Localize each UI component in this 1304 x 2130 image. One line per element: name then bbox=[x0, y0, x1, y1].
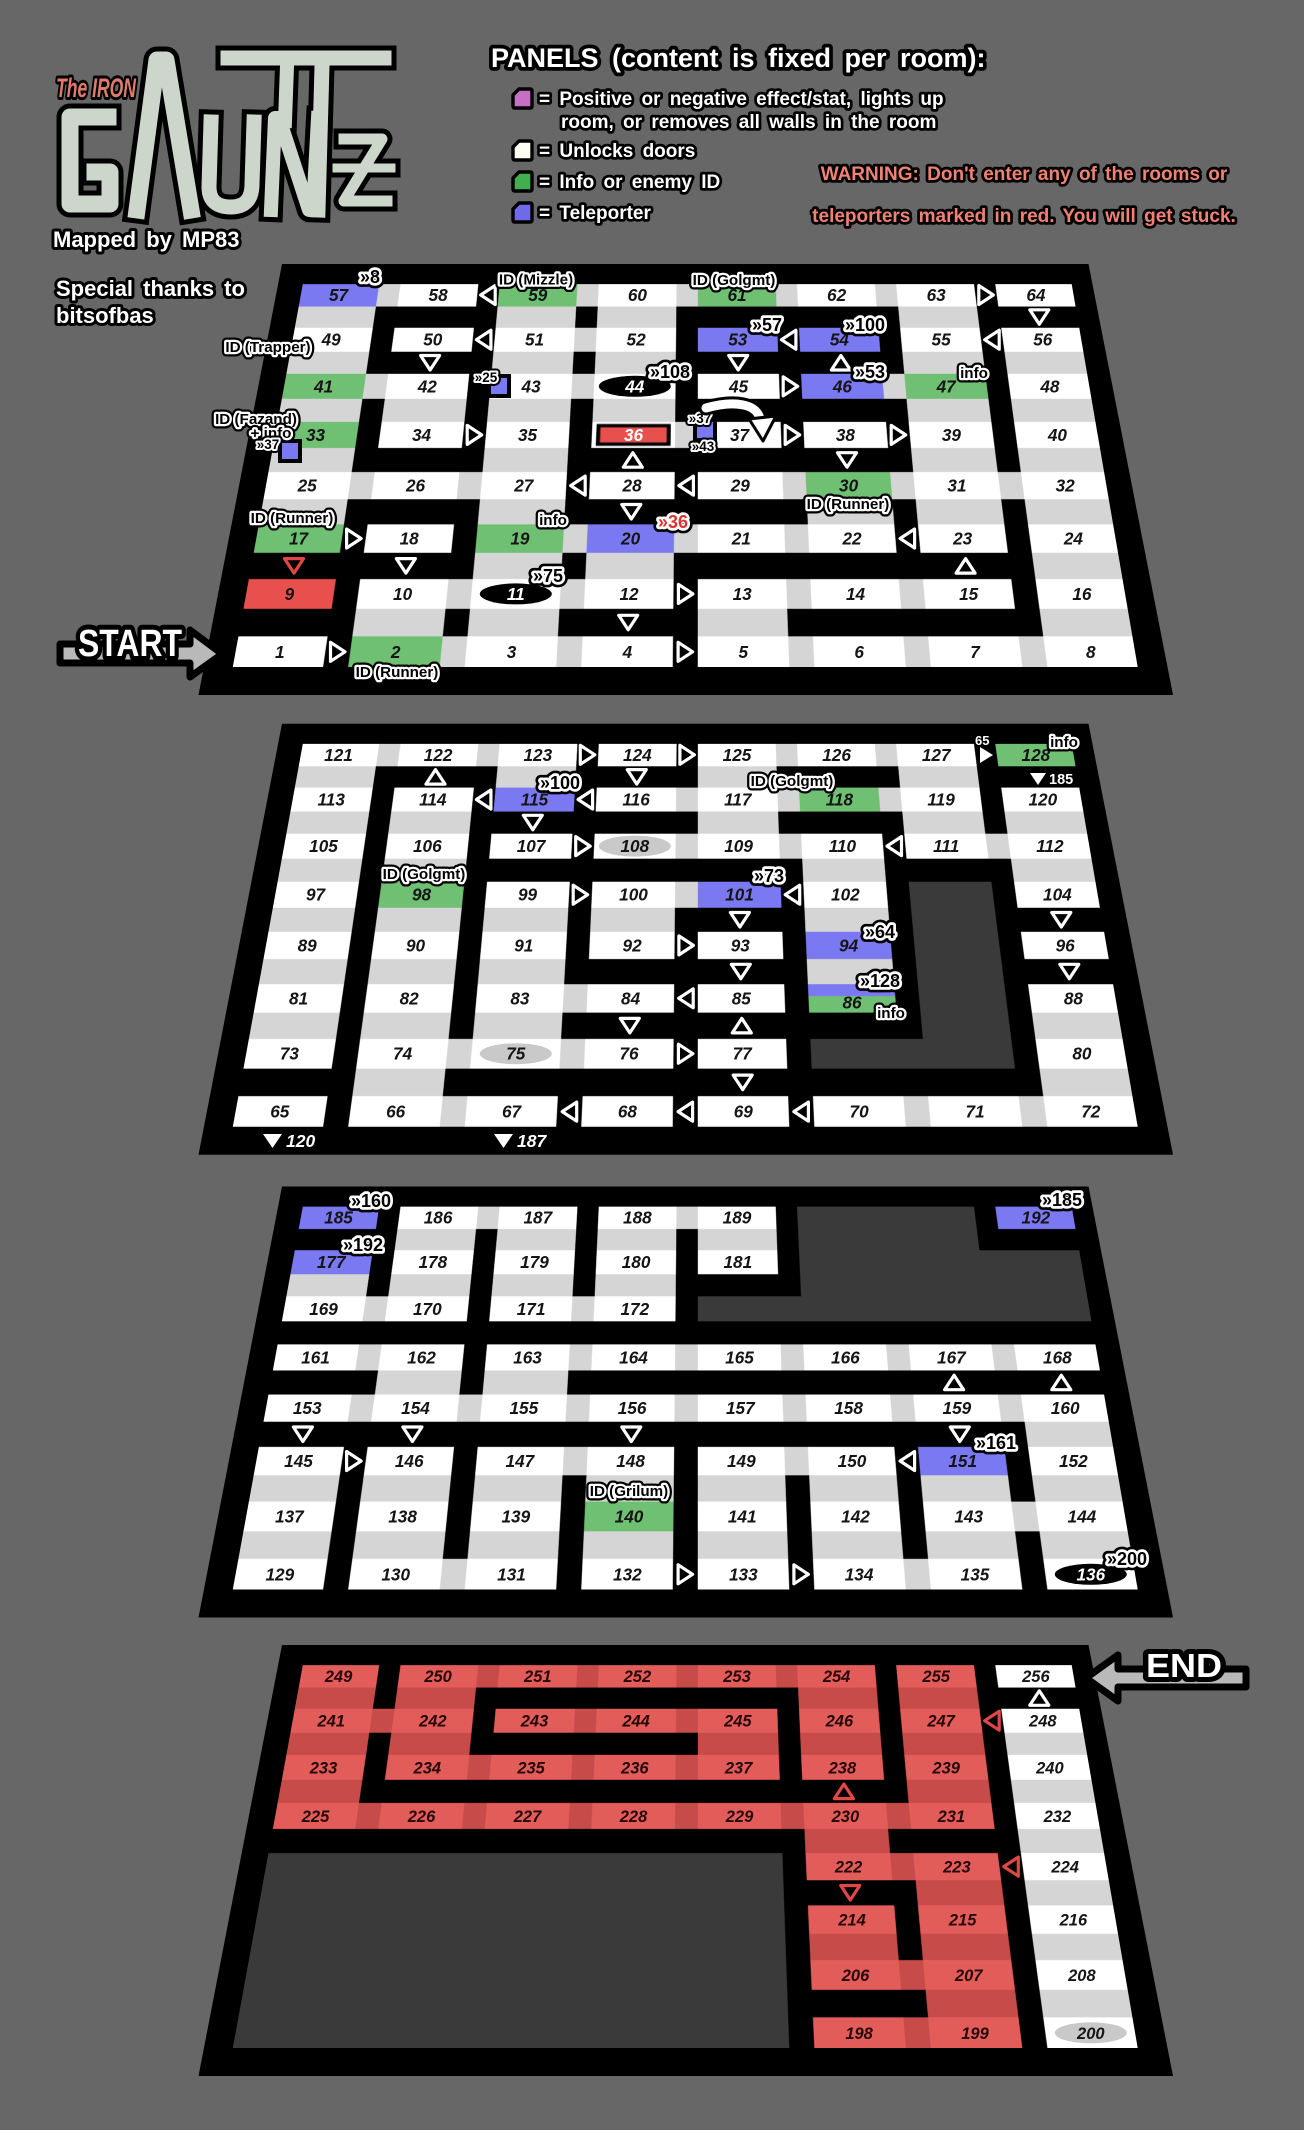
svg-text:11: 11 bbox=[507, 584, 525, 604]
svg-text:207: 207 bbox=[954, 1967, 983, 1985]
svg-text:222: 222 bbox=[834, 1859, 863, 1877]
svg-text:229: 229 bbox=[725, 1808, 754, 1826]
svg-text:3: 3 bbox=[507, 642, 517, 662]
svg-text:20: 20 bbox=[620, 529, 641, 549]
svg-text:6: 6 bbox=[854, 642, 864, 662]
svg-text:teleporters marked in red. You: teleporters marked in red. You will get … bbox=[812, 206, 1236, 227]
svg-text:151: 151 bbox=[948, 1451, 977, 1471]
svg-text:185: 185 bbox=[324, 1208, 353, 1228]
svg-text:140: 140 bbox=[615, 1506, 644, 1526]
svg-text:»57: »57 bbox=[752, 315, 782, 335]
svg-text:= Teleporter: = Teleporter bbox=[539, 203, 651, 224]
svg-text:74: 74 bbox=[393, 1044, 413, 1064]
svg-text:91: 91 bbox=[514, 935, 533, 955]
svg-text:189: 189 bbox=[723, 1208, 752, 1228]
svg-text:82: 82 bbox=[400, 988, 420, 1008]
svg-text:113: 113 bbox=[317, 790, 345, 810]
svg-text:165: 165 bbox=[725, 1347, 754, 1367]
svg-text:152: 152 bbox=[1059, 1451, 1088, 1471]
svg-text:160: 160 bbox=[1051, 1398, 1080, 1418]
svg-text:102: 102 bbox=[831, 885, 860, 905]
svg-text:= Positive or negative effect/: = Positive or negative effect/stat, ligh… bbox=[539, 89, 944, 110]
svg-text:255: 255 bbox=[921, 1668, 950, 1686]
svg-text:167: 167 bbox=[937, 1347, 967, 1367]
svg-text:245: 245 bbox=[723, 1713, 752, 1731]
svg-text:65: 65 bbox=[270, 1102, 290, 1122]
svg-text:27: 27 bbox=[513, 476, 535, 496]
svg-text:29: 29 bbox=[730, 476, 751, 496]
svg-text:17: 17 bbox=[289, 529, 310, 549]
svg-text:67: 67 bbox=[502, 1102, 523, 1122]
svg-text:97: 97 bbox=[306, 885, 327, 905]
svg-text:»192: »192 bbox=[343, 1235, 383, 1255]
svg-text:164: 164 bbox=[619, 1347, 648, 1367]
svg-text:ID (Grilum): ID (Grilum) bbox=[590, 1483, 668, 1500]
svg-text:170: 170 bbox=[413, 1299, 442, 1319]
svg-text:84: 84 bbox=[621, 988, 641, 1008]
svg-text:bitsofbas: bitsofbas bbox=[56, 303, 154, 328]
svg-text:250: 250 bbox=[423, 1668, 452, 1686]
svg-text:69: 69 bbox=[734, 1102, 754, 1122]
svg-text:101: 101 bbox=[725, 885, 754, 905]
svg-text:39: 39 bbox=[942, 425, 962, 445]
svg-text:55: 55 bbox=[932, 330, 952, 350]
svg-text:233: 233 bbox=[309, 1759, 338, 1777]
svg-text:8: 8 bbox=[1086, 642, 1096, 662]
svg-text:»43: »43 bbox=[692, 439, 715, 454]
svg-text:98: 98 bbox=[412, 885, 432, 905]
svg-text:10: 10 bbox=[393, 584, 413, 604]
svg-text:215: 215 bbox=[948, 1912, 977, 1930]
svg-text:45: 45 bbox=[728, 376, 749, 396]
svg-text:224: 224 bbox=[1050, 1859, 1079, 1877]
svg-text:72: 72 bbox=[1081, 1102, 1101, 1122]
svg-text:138: 138 bbox=[388, 1506, 417, 1526]
svg-text:117: 117 bbox=[724, 790, 753, 810]
svg-text:ID (Mizzle): ID (Mizzle) bbox=[499, 272, 573, 289]
svg-text:107: 107 bbox=[517, 836, 547, 856]
svg-text:234: 234 bbox=[413, 1759, 442, 1777]
svg-text:76: 76 bbox=[619, 1044, 639, 1064]
svg-text:247: 247 bbox=[926, 1713, 955, 1731]
svg-text:162: 162 bbox=[407, 1347, 436, 1367]
svg-text:»161: »161 bbox=[976, 1433, 1016, 1453]
svg-text:37: 37 bbox=[730, 425, 751, 445]
svg-text:5: 5 bbox=[739, 642, 749, 662]
svg-text:60: 60 bbox=[628, 285, 648, 305]
svg-text:The IRON: The IRON bbox=[56, 73, 136, 103]
svg-text:248: 248 bbox=[1028, 1713, 1057, 1731]
svg-text:242: 242 bbox=[418, 1713, 447, 1731]
svg-text:181: 181 bbox=[723, 1252, 752, 1272]
svg-text:134: 134 bbox=[845, 1564, 874, 1584]
svg-text:153: 153 bbox=[293, 1398, 322, 1418]
svg-text:41: 41 bbox=[313, 376, 333, 396]
svg-text:4: 4 bbox=[622, 642, 633, 662]
svg-text:199: 199 bbox=[961, 2025, 989, 2043]
svg-text:»185: »185 bbox=[1042, 1190, 1082, 1210]
svg-text:= Info or enemy ID: = Info or enemy ID bbox=[539, 172, 720, 193]
svg-text:147: 147 bbox=[506, 1451, 536, 1471]
svg-text:143: 143 bbox=[954, 1506, 983, 1526]
svg-text:161: 161 bbox=[301, 1347, 330, 1367]
svg-text:121: 121 bbox=[324, 745, 353, 765]
svg-text:238: 238 bbox=[828, 1759, 857, 1777]
svg-text:180: 180 bbox=[622, 1252, 651, 1272]
svg-text:108: 108 bbox=[620, 836, 649, 856]
svg-text:25: 25 bbox=[297, 476, 318, 496]
svg-text:83: 83 bbox=[510, 988, 530, 1008]
svg-text:16: 16 bbox=[1072, 584, 1092, 604]
svg-text:»75: »75 bbox=[533, 566, 563, 586]
svg-text:111: 111 bbox=[933, 836, 959, 856]
svg-text:31: 31 bbox=[947, 476, 966, 496]
svg-text:254: 254 bbox=[822, 1668, 851, 1686]
svg-text:15: 15 bbox=[959, 584, 979, 604]
svg-text:»100: »100 bbox=[540, 773, 580, 793]
svg-text:135: 135 bbox=[961, 1564, 990, 1584]
svg-text:227: 227 bbox=[513, 1808, 542, 1826]
svg-text:122: 122 bbox=[424, 745, 453, 765]
svg-text:13: 13 bbox=[733, 584, 753, 604]
svg-text:206: 206 bbox=[841, 1967, 870, 1985]
svg-text:»128: »128 bbox=[860, 971, 900, 991]
svg-text:30: 30 bbox=[839, 476, 859, 496]
svg-text:240: 240 bbox=[1035, 1759, 1064, 1777]
svg-text:40: 40 bbox=[1047, 425, 1068, 445]
svg-text:168: 168 bbox=[1043, 1347, 1072, 1367]
svg-text:131: 131 bbox=[497, 1564, 526, 1584]
svg-text:32: 32 bbox=[1056, 476, 1076, 496]
svg-text:18: 18 bbox=[400, 529, 420, 549]
svg-text:142: 142 bbox=[841, 1506, 870, 1526]
svg-text:50: 50 bbox=[423, 330, 443, 350]
svg-text:144: 144 bbox=[1068, 1506, 1097, 1526]
svg-text:88: 88 bbox=[1064, 988, 1084, 1008]
svg-text:137: 137 bbox=[275, 1506, 305, 1526]
svg-text:ID (Runner): ID (Runner) bbox=[356, 664, 439, 681]
svg-text:149: 149 bbox=[727, 1451, 756, 1471]
svg-text:71: 71 bbox=[965, 1102, 984, 1122]
svg-text:66: 66 bbox=[386, 1102, 406, 1122]
svg-text:93: 93 bbox=[731, 935, 751, 955]
svg-text:139: 139 bbox=[501, 1506, 530, 1526]
svg-text:235: 235 bbox=[516, 1759, 545, 1777]
svg-text:21: 21 bbox=[731, 529, 751, 549]
svg-text:info: info bbox=[877, 1005, 905, 1022]
svg-text:119: 119 bbox=[927, 790, 955, 810]
svg-text:ID (Trapper): ID (Trapper) bbox=[225, 339, 310, 356]
svg-text:63: 63 bbox=[927, 285, 947, 305]
svg-text:155: 155 bbox=[509, 1398, 538, 1418]
svg-text:231: 231 bbox=[937, 1808, 966, 1826]
svg-text:148: 148 bbox=[616, 1451, 645, 1471]
svg-text:»73: »73 bbox=[754, 866, 784, 886]
svg-text:»37: »37 bbox=[257, 437, 280, 452]
svg-text:ID (Golgmt): ID (Golgmt) bbox=[383, 866, 466, 883]
svg-text:127: 127 bbox=[922, 745, 952, 765]
svg-text:157: 157 bbox=[726, 1398, 756, 1418]
svg-text:169: 169 bbox=[309, 1299, 338, 1319]
svg-text:END: END bbox=[1146, 1647, 1222, 1684]
svg-text:53: 53 bbox=[728, 330, 748, 350]
svg-text:158: 158 bbox=[834, 1398, 863, 1418]
svg-text:177: 177 bbox=[317, 1252, 347, 1272]
svg-text:105: 105 bbox=[309, 836, 338, 856]
svg-text:ID (Golgmt): ID (Golgmt) bbox=[751, 773, 834, 790]
svg-text:171: 171 bbox=[517, 1299, 546, 1319]
svg-text:243: 243 bbox=[520, 1713, 549, 1731]
svg-text:178: 178 bbox=[418, 1252, 447, 1272]
svg-text:179: 179 bbox=[520, 1252, 549, 1272]
svg-text:Mapped by MP83: Mapped by MP83 bbox=[53, 227, 239, 252]
svg-text:64: 64 bbox=[1026, 285, 1046, 305]
svg-text:70: 70 bbox=[850, 1102, 870, 1122]
svg-text:ID (Runner): ID (Runner) bbox=[251, 510, 334, 527]
svg-text:28: 28 bbox=[622, 476, 643, 496]
svg-text:2: 2 bbox=[390, 642, 401, 662]
svg-text:124: 124 bbox=[623, 745, 652, 765]
svg-text:9: 9 bbox=[285, 584, 295, 604]
svg-text:253: 253 bbox=[722, 1668, 751, 1686]
svg-text:216: 216 bbox=[1059, 1912, 1088, 1930]
svg-text:223: 223 bbox=[942, 1859, 971, 1877]
svg-text:146: 146 bbox=[395, 1451, 424, 1471]
svg-text:228: 228 bbox=[619, 1808, 648, 1826]
svg-text:226: 226 bbox=[407, 1808, 436, 1826]
svg-text:100: 100 bbox=[619, 885, 648, 905]
svg-text:136: 136 bbox=[1076, 1564, 1105, 1584]
svg-text:»53: »53 bbox=[855, 362, 885, 382]
svg-text:118: 118 bbox=[826, 790, 854, 810]
svg-text:68: 68 bbox=[618, 1102, 638, 1122]
svg-text:info: info bbox=[1050, 734, 1078, 751]
svg-text:141: 141 bbox=[728, 1506, 757, 1526]
svg-text:»108: »108 bbox=[650, 362, 690, 382]
svg-text:33: 33 bbox=[306, 425, 326, 445]
svg-text:208: 208 bbox=[1067, 1967, 1096, 1985]
svg-text:154: 154 bbox=[401, 1398, 430, 1418]
svg-text:123: 123 bbox=[523, 745, 552, 765]
svg-text:58: 58 bbox=[429, 285, 449, 305]
svg-text:57: 57 bbox=[329, 285, 350, 305]
svg-text:START: START bbox=[78, 623, 182, 665]
svg-text:130: 130 bbox=[381, 1564, 410, 1584]
svg-text:112: 112 bbox=[1036, 836, 1064, 856]
svg-text:ID (Runner): ID (Runner) bbox=[807, 496, 890, 513]
svg-text:99: 99 bbox=[518, 885, 538, 905]
svg-text:info: info bbox=[539, 512, 567, 529]
svg-text:133: 133 bbox=[729, 1564, 758, 1584]
svg-text:= Unlocks doors: = Unlocks doors bbox=[539, 141, 695, 162]
svg-text:187: 187 bbox=[517, 1131, 547, 1151]
svg-text:110: 110 bbox=[829, 836, 857, 856]
svg-text:94: 94 bbox=[839, 935, 859, 955]
svg-text:163: 163 bbox=[513, 1347, 542, 1367]
svg-text:75: 75 bbox=[506, 1044, 526, 1064]
svg-text:44: 44 bbox=[624, 376, 645, 396]
svg-text:128: 128 bbox=[1022, 745, 1051, 765]
svg-text:36: 36 bbox=[624, 425, 644, 445]
svg-text:232: 232 bbox=[1043, 1808, 1072, 1826]
svg-text:7: 7 bbox=[970, 642, 981, 662]
svg-text:246: 246 bbox=[825, 1713, 854, 1731]
svg-text:81: 81 bbox=[289, 988, 308, 1008]
svg-text:ID (Golgmt): ID (Golgmt) bbox=[693, 272, 776, 289]
svg-text:187: 187 bbox=[523, 1208, 553, 1228]
svg-text:WARNING: Don't enter any of th: WARNING: Don't enter any of the rooms or bbox=[821, 164, 1228, 185]
svg-text:38: 38 bbox=[836, 425, 856, 445]
svg-text:»100: »100 bbox=[845, 315, 885, 335]
svg-text:Special thanks to: Special thanks to bbox=[56, 276, 245, 301]
svg-text:47: 47 bbox=[936, 376, 958, 396]
svg-text:PANELS (content is fixed per r: PANELS (content is fixed per room): bbox=[491, 43, 986, 73]
svg-text:24: 24 bbox=[1063, 529, 1084, 549]
svg-text:19: 19 bbox=[510, 529, 530, 549]
svg-text:22: 22 bbox=[841, 529, 862, 549]
svg-text:info: info bbox=[960, 365, 988, 382]
svg-text:237: 237 bbox=[724, 1759, 753, 1777]
svg-text:room, or removes all walls in: room, or removes all walls in the room bbox=[561, 112, 936, 133]
svg-text:35: 35 bbox=[518, 425, 538, 445]
svg-text:86: 86 bbox=[842, 992, 862, 1012]
svg-text:85: 85 bbox=[732, 988, 752, 1008]
svg-text:166: 166 bbox=[831, 1347, 860, 1367]
svg-text:159: 159 bbox=[943, 1398, 972, 1418]
svg-text:»160: »160 bbox=[351, 1191, 391, 1211]
svg-text:»8: »8 bbox=[360, 267, 380, 287]
svg-text:80: 80 bbox=[1072, 1044, 1092, 1064]
svg-text:132: 132 bbox=[613, 1564, 642, 1584]
svg-text:96: 96 bbox=[1056, 935, 1076, 955]
svg-text:26: 26 bbox=[405, 476, 426, 496]
svg-text:172: 172 bbox=[620, 1299, 649, 1319]
svg-text:200: 200 bbox=[1076, 2025, 1105, 2043]
svg-text:34: 34 bbox=[412, 425, 432, 445]
svg-text:»64: »64 bbox=[865, 922, 895, 942]
svg-text:230: 230 bbox=[831, 1808, 860, 1826]
svg-text:»200: »200 bbox=[1107, 1549, 1147, 1569]
svg-text:120: 120 bbox=[286, 1131, 315, 1151]
svg-text:252: 252 bbox=[623, 1668, 652, 1686]
svg-text:156: 156 bbox=[618, 1398, 647, 1418]
svg-text:120: 120 bbox=[1028, 790, 1057, 810]
svg-text:1: 1 bbox=[275, 642, 285, 662]
svg-text:251: 251 bbox=[523, 1668, 552, 1686]
svg-text:65: 65 bbox=[975, 733, 989, 748]
svg-text:188: 188 bbox=[623, 1208, 652, 1228]
svg-text:52: 52 bbox=[627, 330, 647, 350]
svg-text:43: 43 bbox=[521, 376, 542, 396]
svg-text:185: 185 bbox=[1049, 772, 1073, 788]
svg-text:125: 125 bbox=[723, 745, 752, 765]
svg-text:14: 14 bbox=[846, 584, 866, 604]
svg-text:116: 116 bbox=[622, 790, 650, 810]
svg-text:150: 150 bbox=[838, 1451, 867, 1471]
svg-text:236: 236 bbox=[620, 1759, 649, 1777]
svg-text:77: 77 bbox=[733, 1044, 754, 1064]
svg-text:241: 241 bbox=[316, 1713, 345, 1731]
svg-text:109: 109 bbox=[724, 836, 753, 856]
svg-text:56: 56 bbox=[1033, 330, 1053, 350]
svg-text:49: 49 bbox=[321, 330, 342, 350]
svg-text:239: 239 bbox=[931, 1759, 960, 1777]
svg-text:186: 186 bbox=[424, 1208, 453, 1228]
svg-text:114: 114 bbox=[419, 790, 447, 810]
svg-text:145: 145 bbox=[284, 1451, 313, 1471]
svg-text:249: 249 bbox=[324, 1668, 353, 1686]
svg-text:214: 214 bbox=[837, 1912, 866, 1930]
svg-text:»25: »25 bbox=[475, 370, 498, 385]
svg-text:12: 12 bbox=[619, 584, 639, 604]
svg-text:198: 198 bbox=[845, 2025, 873, 2043]
svg-text:90: 90 bbox=[406, 935, 426, 955]
svg-text:51: 51 bbox=[525, 330, 544, 350]
svg-text:225: 225 bbox=[301, 1808, 330, 1826]
svg-text:»36: »36 bbox=[658, 512, 688, 532]
svg-text:256: 256 bbox=[1021, 1668, 1050, 1686]
svg-text:48: 48 bbox=[1039, 376, 1060, 396]
svg-text:192: 192 bbox=[1022, 1208, 1051, 1228]
svg-text:126: 126 bbox=[822, 745, 851, 765]
svg-text:62: 62 bbox=[827, 285, 847, 305]
svg-text:46: 46 bbox=[832, 376, 853, 396]
svg-text:106: 106 bbox=[413, 836, 442, 856]
svg-text:23: 23 bbox=[952, 529, 973, 549]
svg-text:73: 73 bbox=[280, 1044, 300, 1064]
svg-text:244: 244 bbox=[621, 1713, 650, 1731]
svg-text:129: 129 bbox=[265, 1564, 294, 1584]
svg-text:42: 42 bbox=[417, 376, 438, 396]
svg-text:104: 104 bbox=[1043, 885, 1072, 905]
svg-text:92: 92 bbox=[623, 935, 643, 955]
svg-text:89: 89 bbox=[298, 935, 318, 955]
